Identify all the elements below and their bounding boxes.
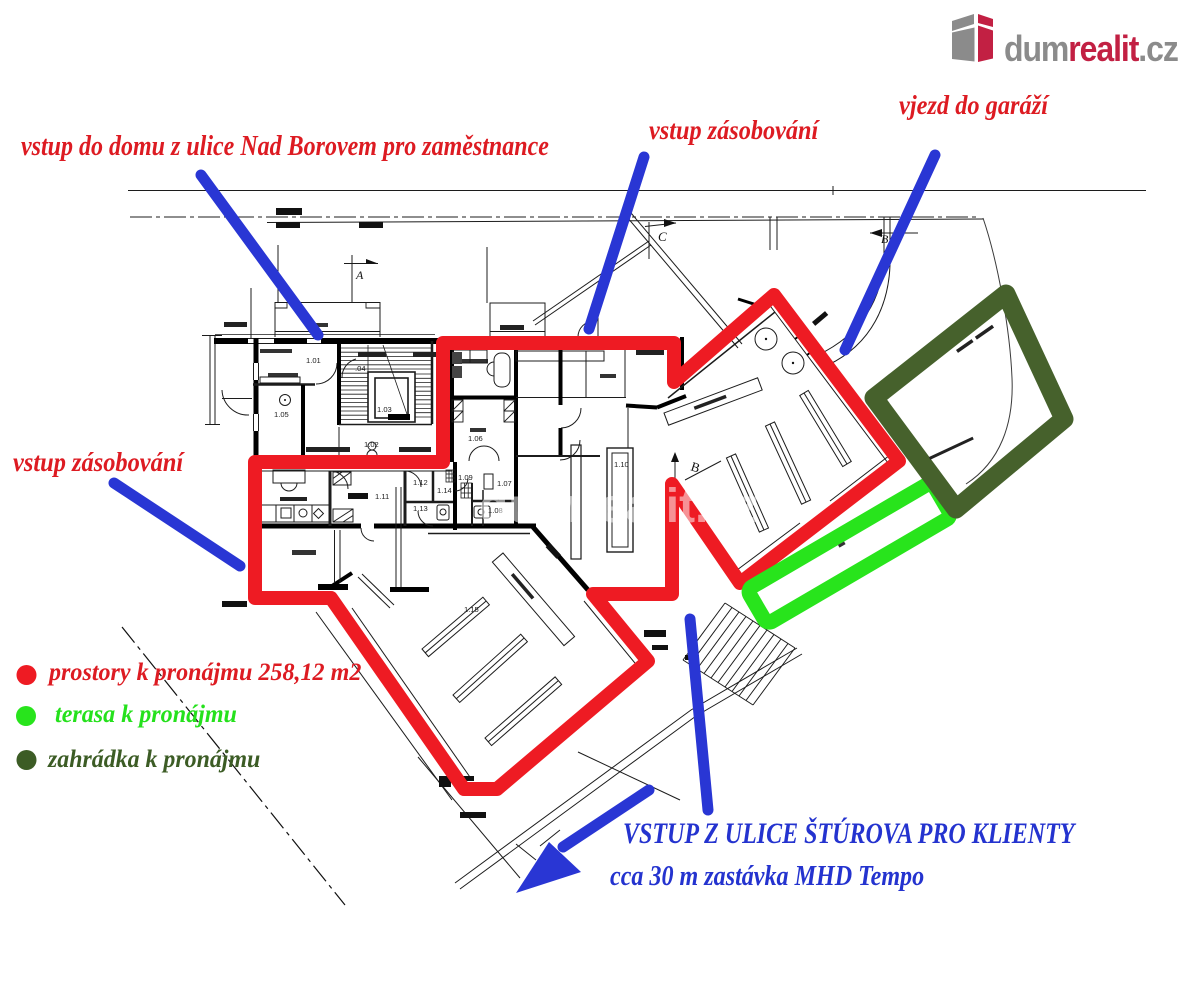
svg-text:B: B	[881, 232, 889, 246]
svg-text:C: C	[658, 229, 667, 244]
svg-text:.04: .04	[355, 364, 366, 373]
svg-text:A: A	[355, 268, 364, 282]
svg-text:1.01: 1.01	[306, 356, 321, 365]
svg-text:1.02: 1.02	[364, 440, 379, 449]
svg-text:1.15: 1.15	[464, 605, 479, 614]
svg-text:1.05: 1.05	[274, 410, 289, 419]
svg-text:1.13: 1.13	[413, 504, 428, 513]
svg-text:dumrealit.cz: dumrealit.cz	[479, 480, 759, 533]
svg-text:1.03: 1.03	[377, 405, 392, 414]
svg-text:1.09: 1.09	[458, 473, 473, 482]
svg-text:1.10: 1.10	[614, 460, 629, 469]
svg-text:1.11: 1.11	[375, 492, 389, 501]
svg-text:1.06: 1.06	[468, 434, 483, 443]
svg-text:1.14: 1.14	[437, 486, 452, 495]
svg-text:1.12: 1.12	[413, 478, 428, 487]
svg-text:B: B	[689, 459, 702, 476]
